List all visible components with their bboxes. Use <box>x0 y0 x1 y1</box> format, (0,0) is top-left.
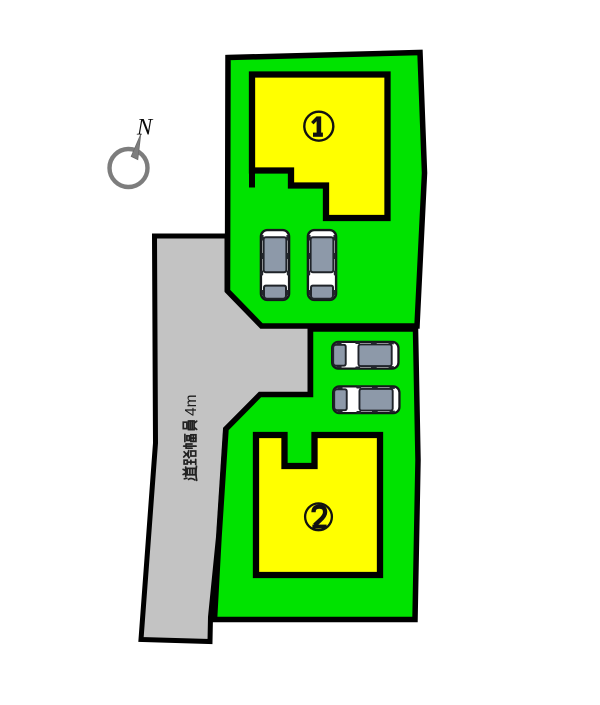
svg-text:4m: 4m <box>183 394 200 416</box>
svg-text:N: N <box>136 115 154 140</box>
